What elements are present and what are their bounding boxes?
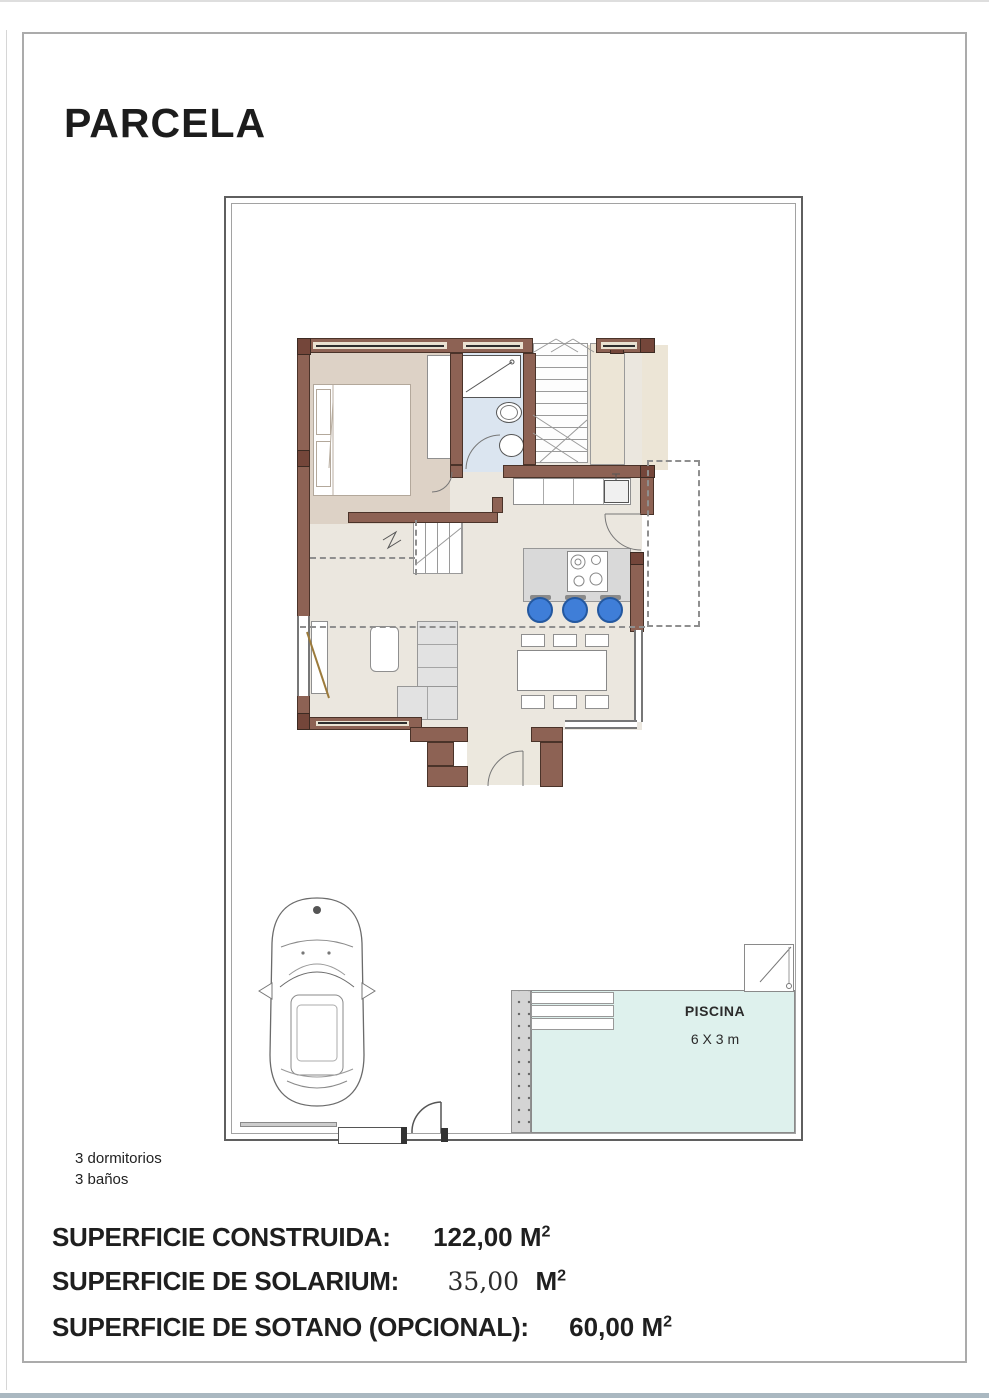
pool-step [531,1018,614,1030]
dining-table [517,650,607,691]
wall-right-lower-block [630,552,644,565]
window-right-vertical [634,630,643,722]
bathrooms-note: 3 baños [75,1171,128,1188]
plan-sheet: PARCELA [0,0,989,1400]
bedroom-dashed-line [310,557,415,559]
outdoor-shower [744,944,794,992]
page-title: PARCELA [64,100,266,147]
area-row-construida: SUPERFICIE CONSTRUIDA: 122,00 M2 [52,1222,551,1253]
bar-stool [597,597,623,623]
driveway-gate-cap [401,1127,407,1144]
coffee-table [370,626,399,672]
wall-strip-stub [492,497,503,513]
porch-pier-left-b [427,742,454,766]
hob [567,551,608,592]
porch-pier-right-b [540,742,563,787]
porch-pier-left-a [410,727,468,742]
washbasin [499,434,524,457]
toilet-inner [500,405,518,420]
bedrooms-note: 3 dormitorios [75,1150,162,1167]
page-left-edge [6,30,7,1390]
area-row-solarium: SUPERFICIE DE SOLARIUM: 35,00 M2 [52,1266,566,1297]
side-lightwell [590,343,625,465]
page-top-edge [0,0,989,2]
entry-porch-floor [467,730,540,785]
driveway-gate-leaf [338,1127,406,1144]
wall-left-block-bottom [297,713,310,730]
pool-label: PISCINA [650,1003,780,1019]
window-bottom-left-glass [318,722,407,724]
dining-chair [585,634,609,647]
dining-chair [585,695,609,709]
bed-pillow-bottom [316,441,331,487]
window-bottom-right [565,720,637,729]
dining-chair [521,634,545,647]
wall-divider-stub [450,465,463,478]
sofa-chaise [397,686,458,720]
area-value: 60,00 M2 [569,1312,672,1342]
bar-stool [527,597,553,623]
area-row-sotano: SUPERFICIE DE SOTANO (OPCIONAL): 60,00 M… [52,1312,672,1343]
dining-chair [553,634,577,647]
pool-step [531,992,614,1004]
staircase-up [533,343,588,463]
porch-pier-right-a [531,727,563,742]
area-label: SUPERFICIE DE SOTANO (OPCIONAL): [52,1312,529,1342]
shower-tray [459,355,521,398]
area-label: SUPERFICIE CONSTRUIDA: [52,1222,391,1252]
window-bedroom-top-glass [316,345,444,347]
upper-floor-dashed-line [300,626,645,628]
wall-bed-bath-divider [450,353,463,465]
bar-stool [562,597,588,623]
window-ne-top-glass [603,345,635,347]
kitchen-sink [604,480,629,503]
dining-chair [521,695,545,709]
pool-deck-strip [511,990,531,1133]
bed-pillow-top [316,389,331,435]
wall-corner-nw [297,338,311,355]
pool-size-label: 6 X 3 m [650,1031,780,1047]
window-bath-top-glass [466,345,520,347]
wall-kitchen-top [503,465,655,478]
dining-chair [553,695,577,709]
window-left-living [297,616,310,696]
basement-dashed-line [415,520,417,575]
wall-corner-ne [640,338,655,353]
wall-left-block-mid [297,450,310,467]
wall-bath-right [523,353,536,465]
area-label: SUPERFICIE DE SOLARIUM: [52,1266,399,1296]
pedestrian-gate-post [441,1128,448,1142]
sideboard [311,621,328,694]
terrace-dashed-outline [647,460,700,627]
low-wall [240,1122,337,1127]
sofa-section-vertical [417,621,458,691]
porch-pier-left-c [427,766,468,787]
pool-step [531,1005,614,1017]
area-value-serif: 35,00 [447,1267,519,1296]
basement-staircase [413,521,463,574]
area-unit: M2 [536,1266,567,1296]
page-bottom-edge [0,1393,989,1398]
wall-bedroom-bottom-strip [348,512,498,523]
area-value: 122,00 M2 [433,1222,550,1252]
